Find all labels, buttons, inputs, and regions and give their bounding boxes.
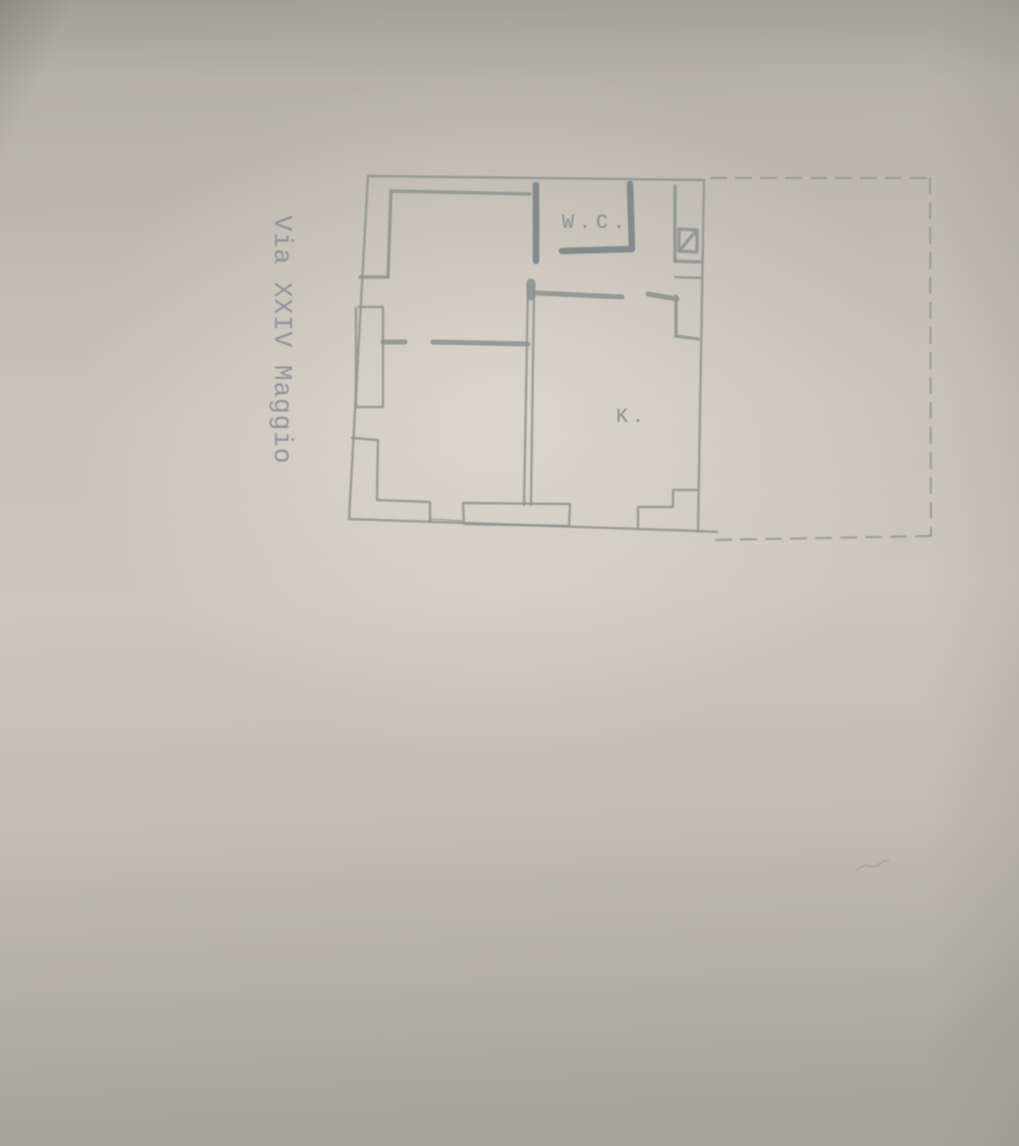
kitchen-corner-jog-horizontal [676, 336, 698, 339]
central-wall-left-line [524, 285, 528, 505]
shaft-bottom-line [675, 261, 700, 262]
duct-shaft [675, 186, 701, 278]
interior-walls [356, 191, 698, 505]
floor-plan-drawing: W.C. K. Via XXIV Maggio [0, 0, 1019, 1146]
central-wall-right-line [531, 285, 534, 505]
street-name-label: Via XXIV Maggio [267, 215, 297, 464]
scanned-paper-photo: W.C. K. Via XXIV Maggio [0, 0, 1019, 1146]
bottom-sill-lines [432, 519, 462, 521]
courtyard-dashed-outline [711, 178, 931, 540]
front-room-left-wall [388, 191, 391, 277]
front-room-top-wall [391, 191, 530, 194]
hall-partition-wall [433, 342, 528, 344]
bottom-left-recess [352, 438, 430, 521]
dashed-right-line [930, 178, 931, 536]
bottom-right-steps [638, 490, 697, 528]
dashed-bottom-line [715, 536, 931, 540]
kitchen-top-wall-right [648, 294, 677, 299]
shaft-second-line [675, 277, 701, 278]
wc-room-label: W.C. [562, 212, 630, 235]
bottom-wall-extension [698, 531, 717, 532]
shaft-diagonal [681, 232, 695, 249]
kitchen-top-wall-left [537, 293, 622, 297]
pencil-mark [856, 861, 889, 871]
kitchen-room-label: K. [616, 406, 648, 429]
